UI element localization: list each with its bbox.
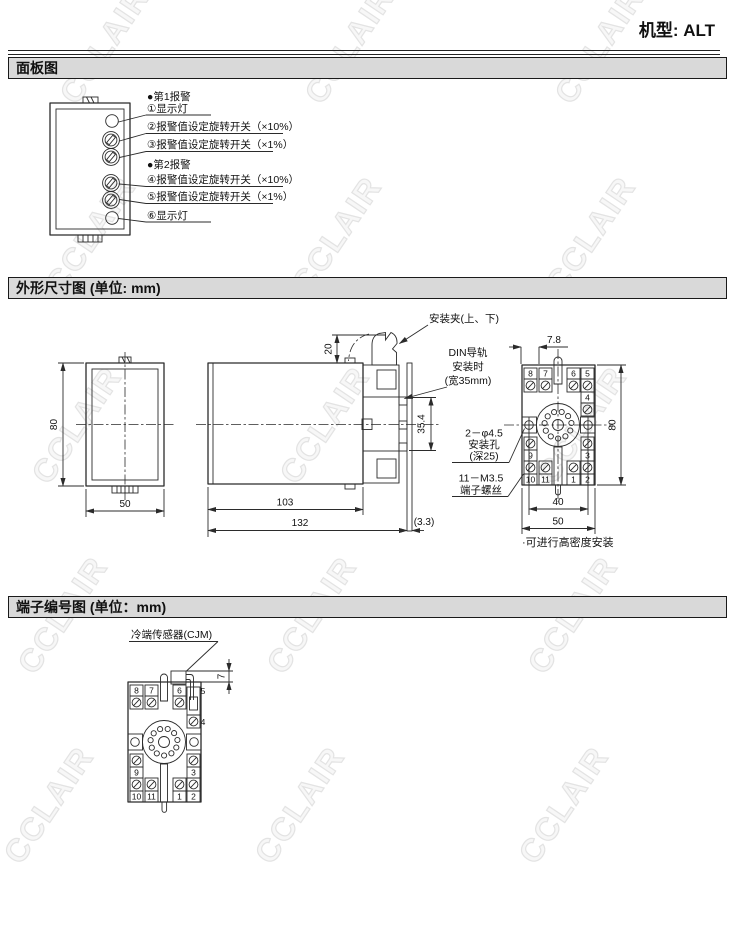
terminal-number-diagram: 冷端传感器(CJM) 7 8 7 6 — [95, 620, 295, 835]
terminal-number: 8 — [528, 369, 533, 379]
terminal-number: 4 — [585, 393, 590, 403]
datasheet-page: CCLAIR CCLAIR CCLAIR CCLAIR CCLAIR CCLAI… — [0, 0, 729, 937]
terminal-number: 1 — [177, 792, 182, 802]
dim-socket-offset: 7.8 — [547, 335, 561, 346]
top-rule — [8, 50, 720, 55]
screw-label-line1: 11－M3.5 — [459, 473, 504, 485]
panel-diagram: ●第1报警 ①显示灯 ②报警值设定旋转开关（×10%） ③报警值设定旋转开关（×… — [30, 85, 430, 255]
sw3-label: ③报警值设定旋转开关（×1%） — [147, 138, 293, 151]
terminal-number: 7 — [543, 369, 548, 379]
hole-label-line1: 2－φ4.5 — [465, 428, 503, 440]
terminal-number: 3 — [191, 768, 196, 778]
alarm2-heading: ●第2报警 — [147, 158, 191, 171]
terminal-number: 10 — [132, 792, 142, 802]
indicator-lamp-6 — [106, 212, 119, 225]
dim-front-width: 50 — [119, 499, 131, 510]
terminal-number: 5 — [585, 369, 590, 379]
clip-label: 安装夹(上、下) — [429, 312, 499, 325]
mounting-hole-left — [131, 738, 140, 747]
section-header-terminal: 端子编号图 (单位：mm) — [8, 596, 727, 618]
front-view: 80 50 — [49, 352, 174, 517]
screw-label-line2: 端子螺丝 — [460, 484, 502, 497]
dim-sensor-height: 7 — [217, 673, 228, 679]
rotary-switch-3 — [103, 149, 120, 166]
terminal-number: 6 — [177, 686, 182, 696]
dim-clip-height: 20 — [324, 343, 335, 355]
dim-body-length: 103 — [277, 498, 294, 509]
sw2-label: ②报警值设定旋转开关（×10%） — [147, 120, 299, 133]
mounting-hole-right — [190, 738, 199, 747]
model-label: 机型: ALT — [639, 16, 715, 41]
dim-socket-width: 50 — [552, 517, 564, 528]
side-view: 20 35.4 安装夹(上、下) DIN导轨 安装时 (宽35mm) 103 — [196, 312, 499, 537]
rotary-switch-2 — [103, 132, 120, 149]
terminal-number: 7 — [149, 686, 154, 696]
pin-socket-circle — [143, 721, 186, 764]
sw5-label: ⑤报警值设定旋转开关（×1%） — [147, 190, 293, 203]
page-content: 机型: ALT 面板图 外形尺寸图 (单位: mm) 端子编号图 (单位：mm) — [0, 0, 729, 937]
rotary-switch-5 — [103, 192, 120, 209]
cjm-sensor-label: 冷端传感器(CJM) — [131, 628, 212, 641]
lamp1-label: ①显示灯 — [147, 103, 188, 115]
panel-callouts: ●第1报警 ①显示灯 ②报警值设定旋转开关（×10%） ③报警值设定旋转开关（×… — [119, 90, 300, 222]
din-label-line3: (宽35mm) — [445, 374, 492, 387]
sw4-label: ④报警值设定旋转开关（×10%） — [147, 173, 299, 186]
terminal-number: 6 — [571, 369, 576, 379]
mounting-clip-shape — [372, 333, 397, 366]
hole-label-line3: (深25) — [469, 451, 498, 463]
hole-label-line2: 安装孔 — [468, 438, 500, 451]
alarm1-heading: ●第1报警 — [147, 90, 191, 103]
terminal-number: 11 — [541, 475, 550, 485]
terminal-number: 2 — [191, 792, 196, 802]
terminal-number: 10 — [526, 475, 536, 485]
din-label-line2: 安装时 — [452, 360, 484, 373]
outline-dimension-diagram: 80 50 — [30, 300, 690, 560]
terminal-number: 5 — [201, 686, 206, 696]
terminal-number: 4 — [201, 717, 206, 727]
panel-device-drawing — [50, 97, 130, 242]
terminal-number: 11 — [147, 792, 156, 802]
dim-socket-height: 80 — [608, 419, 619, 431]
high-density-note: ·可进行高密度安装 — [522, 535, 614, 549]
din-label-line1: DIN导轨 — [448, 346, 488, 359]
terminal-number: 9 — [134, 768, 139, 778]
dim-total-length: 132 — [292, 518, 309, 529]
dim-plate-gap: (3.3) — [414, 517, 435, 528]
indicator-lamp-1 — [106, 115, 119, 128]
lamp6-label: ⑥显示灯 — [147, 210, 188, 222]
dim-front-height: 80 — [49, 419, 60, 431]
section-header-panel: 面板图 — [8, 57, 727, 79]
dim-hole-span: 40 — [552, 497, 564, 508]
rotary-switch-4 — [103, 175, 120, 192]
terminal-number: 1 — [571, 475, 576, 485]
dim-rail-height: 35.4 — [417, 414, 428, 434]
terminal-number: 8 — [134, 686, 139, 696]
section-header-outline: 外形尺寸图 (单位: mm) — [8, 277, 727, 299]
